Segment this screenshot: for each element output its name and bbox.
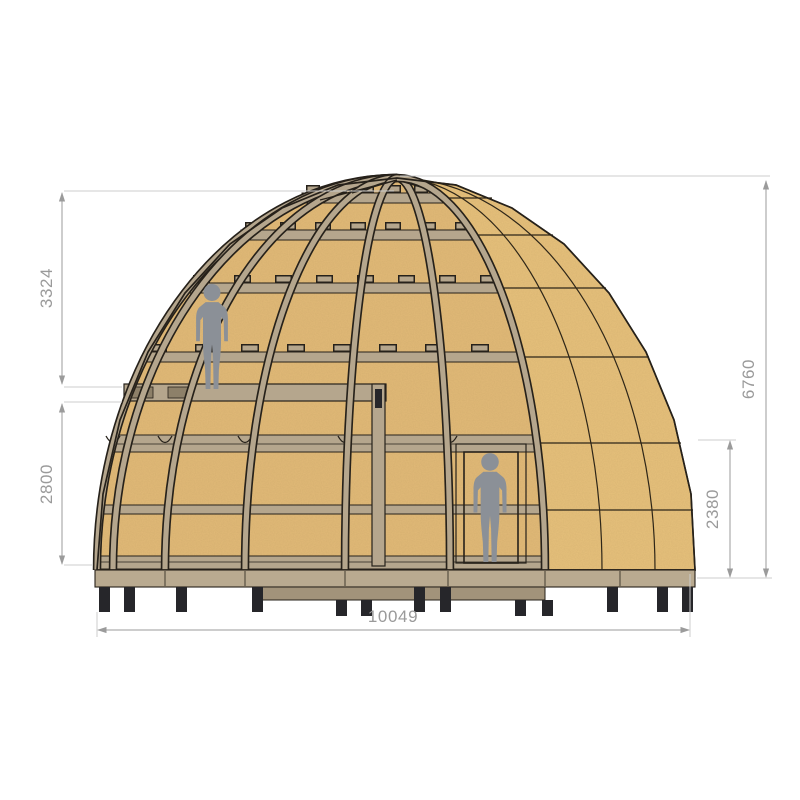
foundation-foot [176,587,187,612]
foundation-foot [682,587,693,612]
arrow-up-icon [727,440,733,450]
arrow-down-icon [59,556,65,566]
drawing-canvas: 3324 2800 6760 2380 10049 [0,0,800,800]
arrow-right-icon [681,627,691,633]
support-post [372,384,385,566]
dimension-label-upper-height: 3324 [37,268,56,308]
foundation-foot [99,587,110,612]
foundation-foot [440,587,451,612]
foundation-foot [252,587,263,612]
foundation-foot [515,600,526,616]
arrow-down-icon [727,569,733,579]
dimension-label-wall-height: 2380 [703,489,722,529]
arrow-up-icon [59,192,65,202]
foundation-foot [542,600,553,616]
arrow-down-icon [763,569,769,579]
arrow-up-icon [59,403,65,413]
arrow-down-icon [59,376,65,386]
foundation-foot [336,600,347,616]
foundation-foot [124,587,135,612]
foundation-beam [95,570,695,587]
foundation-step [255,587,545,600]
dimension-label-total-height: 6760 [739,359,758,399]
foundation-foot [657,587,668,612]
post-bracket [375,389,382,408]
arrow-left-icon [97,627,107,633]
arrow-up-icon [763,180,769,190]
dome-elevation-drawing: 3324 2800 6760 2380 10049 [0,0,800,800]
foundation-foot [607,587,618,612]
dimension-label-base-width: 10049 [368,607,418,626]
dimension-label-lower-height: 2800 [37,464,56,504]
